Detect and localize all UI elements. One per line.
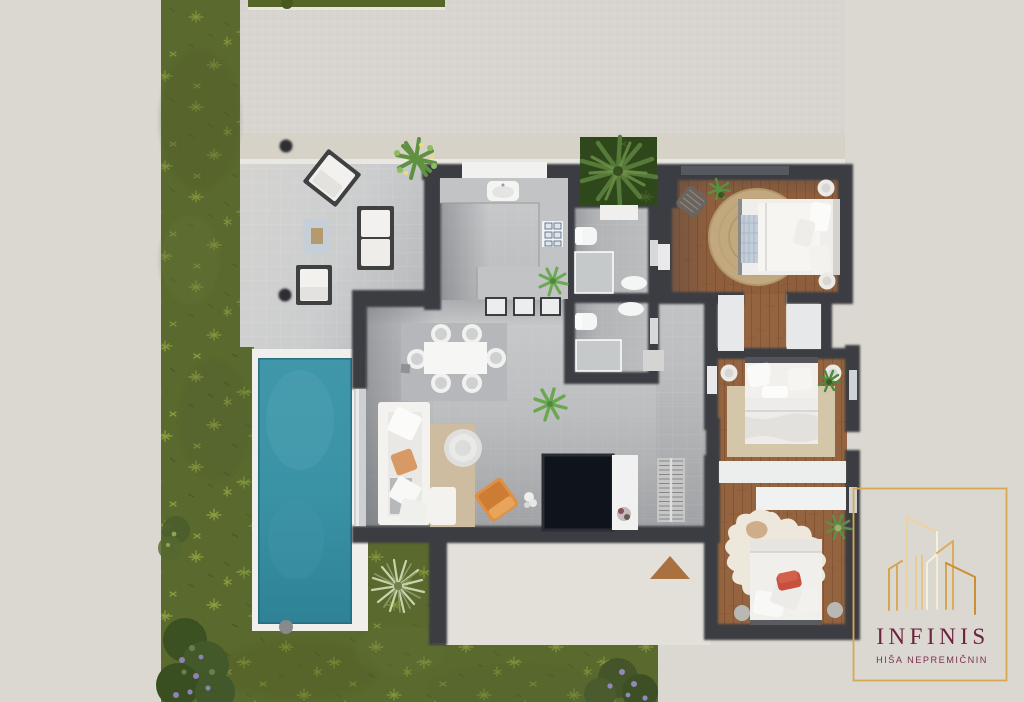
svg-text:INFINIS: INFINIS	[876, 624, 989, 649]
svg-text:HIŠA NEPREMIČNIN: HIŠA NEPREMIČNIN	[876, 655, 988, 665]
